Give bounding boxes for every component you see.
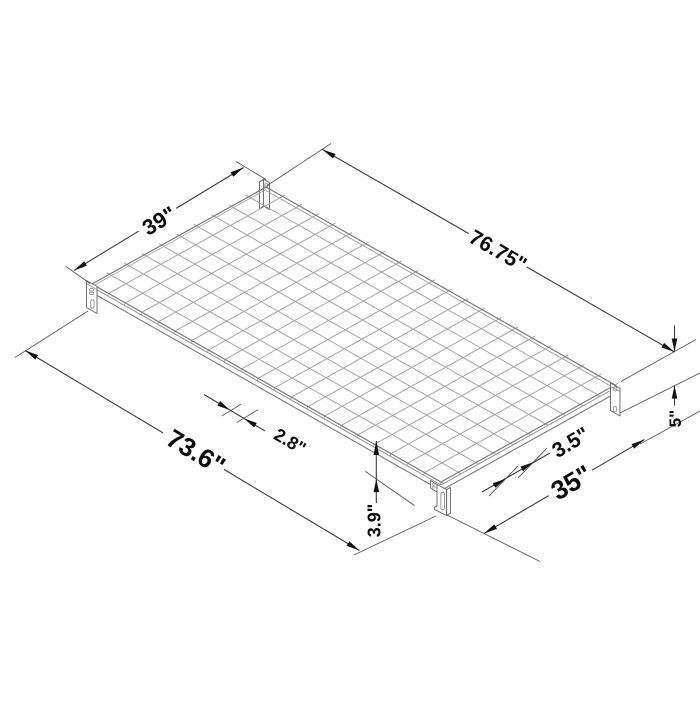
svg-text:3.9": 3.9" [365, 504, 385, 538]
svg-text:5": 5" [666, 410, 685, 428]
